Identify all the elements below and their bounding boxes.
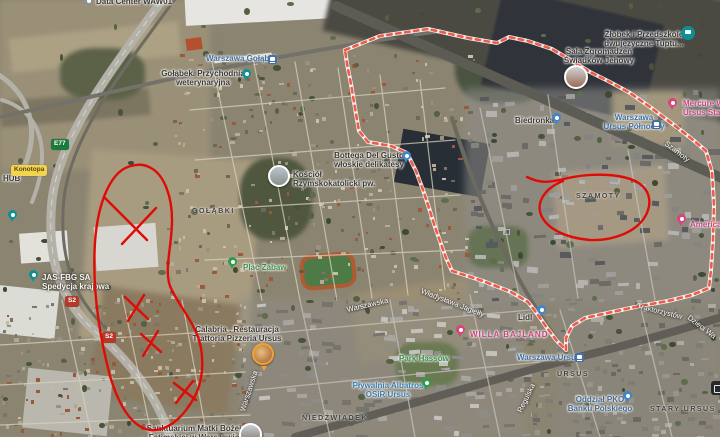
drawn-x-2 xyxy=(125,295,148,321)
hand-drawn-annotations xyxy=(0,0,720,437)
drawn-x-3 xyxy=(141,331,161,356)
satellite-map[interactable]: Data Center WAW01 Gołąbek. Przychodniawe… xyxy=(0,0,720,437)
drawn-x-large xyxy=(104,197,156,244)
drawn-ellipse-szamoty xyxy=(527,175,649,240)
